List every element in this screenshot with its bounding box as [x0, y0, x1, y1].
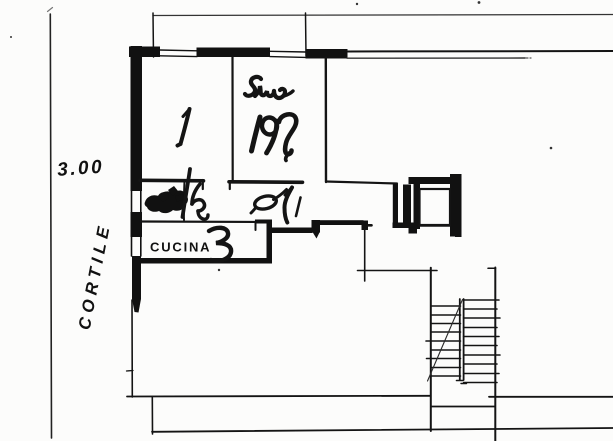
- svg-text:3.00: 3.00: [57, 157, 105, 181]
- svg-text:CUCINA: CUCINA: [150, 240, 211, 255]
- svg-text:CORTILE: CORTILE: [75, 220, 115, 331]
